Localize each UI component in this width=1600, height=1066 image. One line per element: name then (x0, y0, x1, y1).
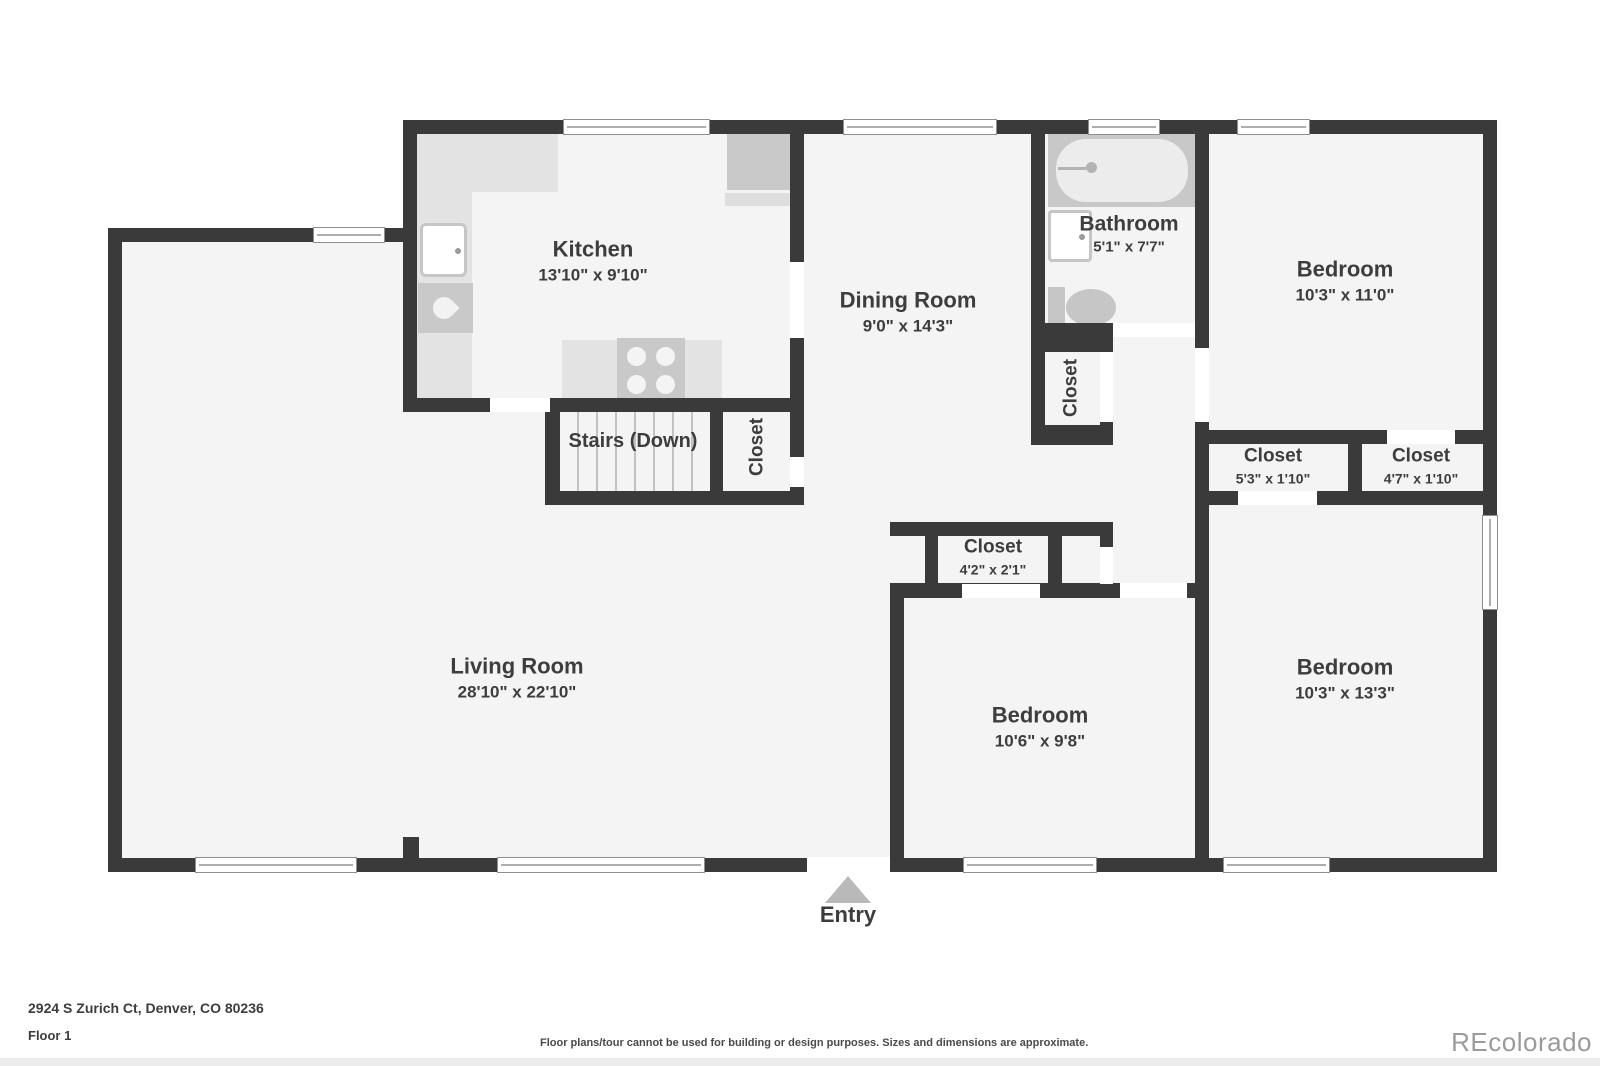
room-name: Bedroom (992, 702, 1089, 731)
outside-mask (0, 0, 404, 229)
window-icon (843, 119, 997, 135)
room-label-closet-47: Closet 4'7" x 1'10" (1384, 445, 1458, 488)
room-dims: 28'10" x 22'10" (450, 681, 583, 703)
wall (403, 398, 804, 412)
wall (1031, 337, 1113, 352)
room-dims: 9'0" x 14'3" (840, 315, 977, 337)
entry-door-opening (807, 857, 890, 873)
room-label-kitchen: Kitchen 13'10" x 9'10" (538, 236, 647, 287)
door-opening (1195, 348, 1209, 422)
door-opening (1100, 352, 1113, 422)
wall (1031, 425, 1113, 445)
window-icon (563, 119, 710, 135)
room-label-bathroom: Bathroom 5'1" x 7'7" (1079, 211, 1178, 258)
room-name: Closet (1236, 445, 1310, 470)
window-icon (497, 857, 705, 873)
wall (108, 228, 122, 872)
kitchen-counter (417, 134, 558, 192)
window-icon (963, 857, 1097, 873)
room-name: Dining Room (840, 287, 977, 316)
room-name: Bathroom (1079, 211, 1178, 238)
wall (890, 522, 1113, 536)
room-label-bedroom-bottom-right: Bedroom 10'3" x 13'3" (1295, 654, 1395, 705)
room-label-closet-53: Closet 5'3" x 1'10" (1236, 445, 1310, 488)
room-name: Bedroom (1295, 654, 1395, 683)
wall (710, 412, 723, 491)
room-label-bedroom-middle: Bedroom 10'6" x 9'8" (992, 702, 1089, 753)
floor-number-text: Floor 1 (28, 1028, 71, 1043)
kitchen-counter (725, 193, 792, 206)
toilet-icon (1048, 287, 1118, 327)
dishwasher-icon (418, 283, 473, 333)
bathtub-icon (1048, 134, 1195, 207)
door-opening (962, 584, 1040, 598)
room-dims: 10'3" x 11'0" (1296, 284, 1395, 306)
wall (545, 398, 560, 505)
room-dims: 13'10" x 9'10" (538, 264, 647, 286)
door-opening (1120, 583, 1187, 598)
room-label-stairs: Stairs (Down) (569, 428, 698, 454)
burner (656, 347, 675, 366)
room-label-closet-42: Closet 4'2" x 2'1" (960, 536, 1027, 579)
door-opening (790, 457, 804, 487)
window-icon (1223, 857, 1330, 873)
window-icon (1482, 515, 1498, 610)
door-opening (1387, 430, 1455, 444)
door-opening (1238, 491, 1317, 505)
burner (627, 375, 646, 394)
room-name: Stairs (Down) (569, 428, 698, 454)
door-opening (490, 398, 550, 412)
room-label-closet-hall: Closet (1060, 359, 1085, 417)
entry-arrow-icon (825, 876, 871, 903)
room-label-closet-stairs: Closet (746, 418, 771, 476)
disclaimer-text: Floor plans/tour cannot be used for buil… (540, 1037, 1088, 1049)
recolorado-watermark: REcolorado (1451, 1027, 1592, 1058)
window-icon (313, 227, 385, 243)
page-bottom-edge (0, 1058, 1600, 1066)
kitchen-sink-icon (420, 223, 467, 277)
room-dims: 5'3" x 1'10" (1236, 469, 1310, 487)
door-opening (1100, 547, 1113, 584)
address-text: 2924 S Zurich Ct, Denver, CO 80236 (28, 1000, 264, 1016)
burner (627, 347, 646, 366)
door-opening (1113, 323, 1195, 337)
room-dims: 5'1" x 7'7" (1079, 238, 1178, 258)
room-dims: 10'3" x 13'3" (1295, 682, 1395, 704)
burner (656, 375, 675, 394)
room-label-bedroom-top-right: Bedroom 10'3" x 11'0" (1296, 256, 1395, 307)
room-name: Kitchen (538, 236, 647, 265)
wall (1031, 120, 1045, 445)
entry-label: Entry (820, 902, 876, 928)
room-name: Closet (960, 536, 1027, 561)
room-dims: 10'6" x 9'8" (992, 730, 1089, 752)
window-icon (1237, 119, 1310, 135)
room-label-living-room: Living Room 28'10" x 22'10" (450, 653, 583, 704)
wall (403, 837, 419, 858)
window-icon (1088, 119, 1160, 135)
room-name: Closet (1060, 359, 1085, 417)
room-dims: 4'7" x 1'10" (1384, 469, 1458, 487)
room-name: Bedroom (1296, 256, 1395, 285)
wall (545, 491, 804, 505)
door-opening (790, 262, 804, 338)
stove-icon (617, 338, 685, 398)
refrigerator-icon (727, 134, 792, 190)
wall (403, 120, 417, 412)
room-dims: 4'2" x 2'1" (960, 560, 1027, 578)
window-icon (195, 857, 357, 873)
room-name: Closet (1384, 445, 1458, 470)
wall (890, 598, 904, 872)
room-name: Living Room (450, 653, 583, 682)
floor-plan-canvas: Kitchen 13'10" x 9'10" Dining Room 9'0" … (0, 0, 1600, 1066)
room-label-dining-room: Dining Room 9'0" x 14'3" (840, 287, 977, 338)
room-name: Closet (746, 418, 771, 476)
